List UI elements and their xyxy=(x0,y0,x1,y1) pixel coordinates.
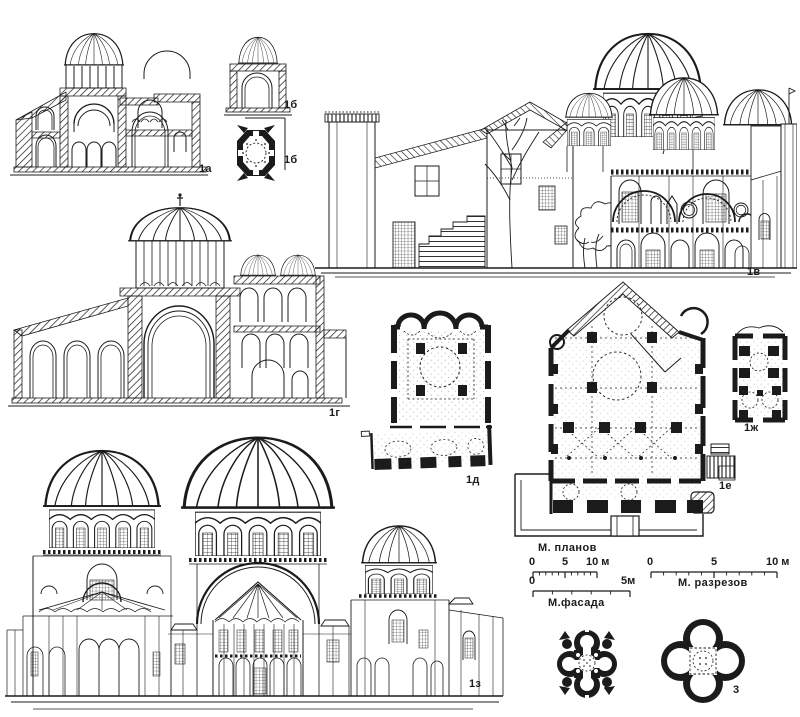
church-domes xyxy=(565,34,719,172)
label-1e: 1е xyxy=(719,480,732,492)
dimension-bracket xyxy=(243,114,289,172)
scale-plans-tick-10: 10 м xyxy=(586,556,609,568)
elevation-1v-drawing xyxy=(315,30,797,284)
low-house xyxy=(375,128,487,268)
plan-1e-drawing xyxy=(505,276,747,568)
right-wing xyxy=(234,255,324,398)
label-1v: 1в xyxy=(747,266,760,278)
label-3: 3 xyxy=(733,684,739,696)
right-dome-block xyxy=(351,526,449,696)
label-1b-plan: 1б xyxy=(284,154,298,166)
label-1d: 1д xyxy=(466,474,480,486)
scale-title-sections: М. разрезов xyxy=(678,577,748,589)
scale-sections-tick-0: 0 xyxy=(647,556,653,568)
label-1g: 1г xyxy=(329,407,340,419)
label-2: 2 xyxy=(604,679,610,691)
scale-bar-plans xyxy=(533,572,597,578)
scale-plans-tick-0: 0 xyxy=(529,556,535,568)
section-1a-drawing xyxy=(8,12,212,180)
left-dome-block xyxy=(7,451,173,696)
plan-1zh-drawing xyxy=(725,320,795,434)
label-1z: 1з xyxy=(469,678,481,690)
ground-line xyxy=(5,696,503,709)
scale-title-plans: М. планов xyxy=(538,542,597,554)
scale-facade-tick-5: 5м xyxy=(621,575,635,587)
figure-canvas: 1а 1б 1б 1в 1г 1д 1е 1ж 1з 2 3 М. планов… xyxy=(0,0,800,717)
label-1zh: 1ж xyxy=(744,422,759,434)
scale-sections-tick-5: 5 xyxy=(711,556,717,568)
section-1g-drawing xyxy=(8,192,353,422)
great-arch-apse xyxy=(197,563,319,696)
scale-title-facade: М.фасада xyxy=(548,597,605,609)
scale-sections-tick-10: 10 м xyxy=(766,556,789,568)
scale-plans-tick-5: 5 xyxy=(562,556,568,568)
elevation-1z-drawing xyxy=(3,434,505,717)
label-1a: 1а xyxy=(199,163,212,175)
label-1b-section: 1б xyxy=(284,99,298,111)
dome-1a xyxy=(66,64,122,88)
dome-1g xyxy=(128,193,232,288)
scale-facade-tick-0: 0 xyxy=(529,575,535,587)
plan-2-drawing xyxy=(551,622,623,706)
